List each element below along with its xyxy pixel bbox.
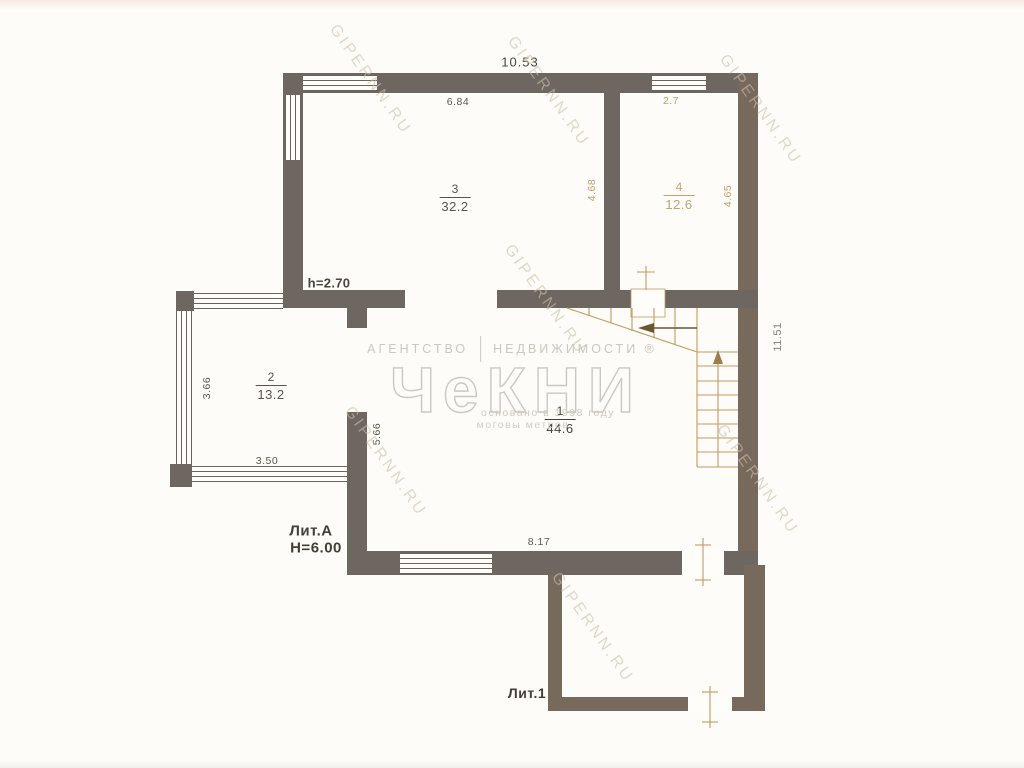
dim-room1-bottom: 8.17 (528, 536, 550, 548)
site-watermark: GIPERNN.RU (715, 51, 805, 168)
scan-edge-tint-bottom (0, 760, 1024, 768)
room-number: 2 (256, 370, 287, 386)
wall-annex-bottom (548, 697, 765, 711)
wall-mid-left (283, 290, 405, 308)
agency-slogan-line: моговы метров (477, 419, 570, 431)
room-area: 13.2 (256, 386, 287, 402)
room-number: 4 (664, 180, 695, 196)
room-area: 12.6 (664, 196, 695, 212)
caption-building-height: H=6.00 (290, 540, 342, 557)
wall-divider-room3-room4 (604, 91, 620, 308)
window-room3-left (285, 95, 301, 160)
dim-room4-right: 4.65 (722, 185, 734, 207)
window-room2-top (194, 293, 283, 309)
window-room2-bottom (192, 466, 347, 482)
wall-right (738, 73, 758, 575)
dim-room2-bottom: 3.50 (256, 455, 278, 467)
room-label-2: 2 13.2 (256, 368, 287, 402)
room-label-3: 3 32.2 (440, 180, 471, 214)
stairs-up-arrowhead (713, 350, 723, 364)
wall-corner-room2-bottomleft (170, 464, 192, 487)
room-number: 3 (440, 182, 471, 198)
stairs-left-arrowhead (638, 323, 654, 333)
window-room2-left (176, 311, 192, 464)
door-opening-main-to-annex (682, 549, 724, 577)
room-label-4: 4 12.6 (664, 178, 695, 212)
window-room1-bottom (400, 553, 492, 573)
scan-edge-tint-top (0, 0, 1024, 10)
dim-room4-top: 2.7 (663, 95, 679, 107)
dim-room4-left: 4.68 (586, 179, 598, 201)
wall-corner-room2-topleft (176, 291, 194, 311)
door-opening-annex-bottom (688, 695, 732, 713)
wall-stub-door-jamb (347, 308, 367, 328)
floor-plan-scan: 10.53 6.84 2.7 4.68 4.65 11.51 3.66 3.50… (0, 0, 1024, 768)
dim-room3-top: 6.84 (447, 96, 469, 108)
agency-founded-line: основано в 1998 году (481, 407, 615, 419)
caption-building-liter: Лит.А (289, 523, 332, 540)
wall-annex-right (744, 565, 765, 711)
dim-ceiling-height: h=2.70 (308, 276, 351, 291)
room-area: 32.2 (440, 198, 471, 214)
dim-right-side: 11.51 (772, 322, 784, 351)
dim-room2-left: 3.66 (201, 377, 213, 399)
window-room4-top (652, 75, 706, 91)
caption-annex-liter: Лит.1 (508, 685, 546, 701)
